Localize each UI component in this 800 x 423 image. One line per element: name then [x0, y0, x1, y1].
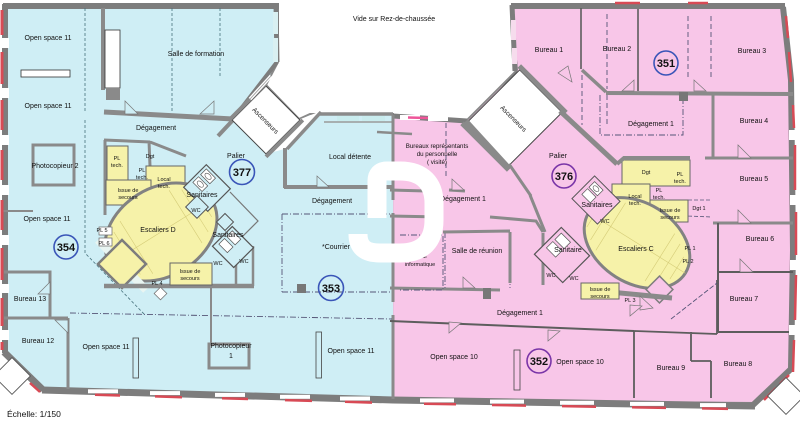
svg-text:Vide sur Rez-de-chaussée: Vide sur Rez-de-chaussée: [353, 16, 435, 23]
svg-text:PL 6: PL 6: [98, 241, 109, 247]
svg-text:354: 354: [57, 242, 76, 254]
svg-text:PL 3: PL 3: [624, 298, 635, 304]
svg-text:Échelle: 1/150: Échelle: 1/150: [7, 409, 61, 419]
svg-text:secours: secours: [118, 195, 138, 201]
svg-text:Bureau 3: Bureau 3: [738, 48, 767, 55]
svg-text:tech.: tech.: [674, 179, 686, 185]
svg-text:352: 352: [530, 356, 548, 368]
svg-text:Issue de: Issue de: [118, 188, 139, 194]
svg-text:Photocopieur 2: Photocopieur 2: [31, 163, 78, 170]
svg-text:Bureau 4: Bureau 4: [740, 118, 769, 125]
svg-text:Sanitaires: Sanitaires: [581, 202, 613, 209]
svg-text:Open space 10: Open space 10: [430, 354, 478, 361]
svg-text:376: 376: [555, 171, 573, 183]
svg-text:WC: WC: [191, 208, 200, 214]
svg-text:tech.: tech.: [136, 175, 148, 181]
svg-text:PL 2: PL 2: [682, 259, 693, 265]
svg-text:Open space 11: Open space 11: [328, 348, 375, 355]
svg-text:PL: PL: [114, 156, 121, 162]
svg-text:353: 353: [322, 283, 340, 295]
svg-text:Bureau 2: Bureau 2: [603, 46, 632, 53]
svg-text:*Courrier: *Courrier: [322, 244, 351, 251]
svg-text:PL 4: PL 4: [151, 281, 162, 287]
svg-text:informatique: informatique: [405, 262, 435, 268]
svg-text:Bureau 13: Bureau 13: [14, 296, 46, 303]
svg-text:Issue de: Issue de: [590, 287, 611, 293]
svg-text:Sanitaire: Sanitaire: [554, 247, 582, 254]
svg-text:Local: Local: [628, 194, 641, 200]
svg-text:WC: WC: [239, 259, 248, 265]
svg-text:PL: PL: [656, 188, 663, 194]
svg-text:1: 1: [229, 353, 233, 360]
svg-text:Bureau 1: Bureau 1: [535, 47, 564, 54]
svg-text:Escaliers C: Escaliers C: [618, 246, 653, 253]
svg-text:Open space 10: Open space 10: [556, 359, 604, 366]
svg-text:Bureau 12: Bureau 12: [22, 338, 54, 345]
svg-text:Dgt: Dgt: [642, 170, 651, 176]
svg-text:Open space 11: Open space 11: [83, 344, 130, 351]
svg-text:PL: PL: [139, 168, 146, 174]
svg-text:Issue de: Issue de: [660, 208, 681, 214]
svg-text:Open space 11: Open space 11: [25, 103, 72, 110]
svg-text:351: 351: [657, 58, 675, 70]
svg-text:Dgt 1: Dgt 1: [692, 206, 705, 212]
svg-text:Escaliers D: Escaliers D: [140, 227, 175, 234]
svg-text:Bureaux représentants: Bureaux représentants: [406, 143, 469, 150]
svg-text:Open space 11: Open space 11: [24, 216, 71, 223]
svg-text:Dégagement 1: Dégagement 1: [497, 310, 543, 317]
svg-text:Local: Local: [157, 177, 170, 183]
svg-text:Photocopieur: Photocopieur: [210, 343, 252, 350]
svg-text:Bureau 5: Bureau 5: [740, 176, 769, 183]
svg-text:Dégagement: Dégagement: [312, 198, 352, 205]
svg-text:secours: secours: [590, 294, 610, 300]
svg-text:Local détente: Local détente: [329, 154, 371, 161]
svg-text:Dgt: Dgt: [146, 154, 155, 160]
svg-text:Dégagement: Dégagement: [136, 125, 176, 132]
svg-text:tech.: tech.: [158, 184, 170, 190]
svg-text:( visité): ( visité): [427, 159, 447, 166]
svg-text:377: 377: [233, 167, 251, 179]
svg-text:PL 5: PL 5: [96, 228, 107, 234]
svg-text:Open space 11: Open space 11: [25, 35, 72, 42]
svg-text:tech.: tech.: [629, 201, 641, 207]
svg-text:PL: PL: [677, 172, 684, 178]
svg-text:Bureau 7: Bureau 7: [730, 296, 759, 303]
svg-text:Palier: Palier: [549, 153, 568, 160]
svg-text:secours: secours: [660, 215, 680, 221]
svg-text:du personnelle: du personnelle: [417, 151, 458, 158]
svg-text:Bureau 9: Bureau 9: [657, 365, 686, 372]
svg-text:tech.: tech.: [111, 163, 123, 169]
svg-text:WC: WC: [213, 261, 222, 267]
svg-text:Issue de: Issue de: [180, 269, 201, 275]
svg-text:Dégagement 1: Dégagement 1: [440, 196, 486, 203]
svg-text:Dégagement 1: Dégagement 1: [628, 121, 674, 128]
svg-text:WC: WC: [546, 273, 555, 279]
svg-text:Bureau 8: Bureau 8: [724, 361, 753, 368]
svg-text:Salle de formation: Salle de formation: [168, 51, 225, 58]
svg-text:secours: secours: [180, 276, 200, 282]
svg-text:PL 1: PL 1: [684, 246, 695, 252]
svg-text:WC: WC: [600, 219, 609, 225]
svg-text:Salle de réunion: Salle de réunion: [452, 248, 503, 255]
svg-text:tech.: tech.: [653, 195, 665, 201]
svg-text:Sanitaires: Sanitaires: [186, 192, 218, 199]
svg-text:Sanitaires: Sanitaires: [212, 232, 244, 239]
svg-text:WC: WC: [569, 276, 578, 282]
svg-text:Bureau 6: Bureau 6: [746, 236, 775, 243]
